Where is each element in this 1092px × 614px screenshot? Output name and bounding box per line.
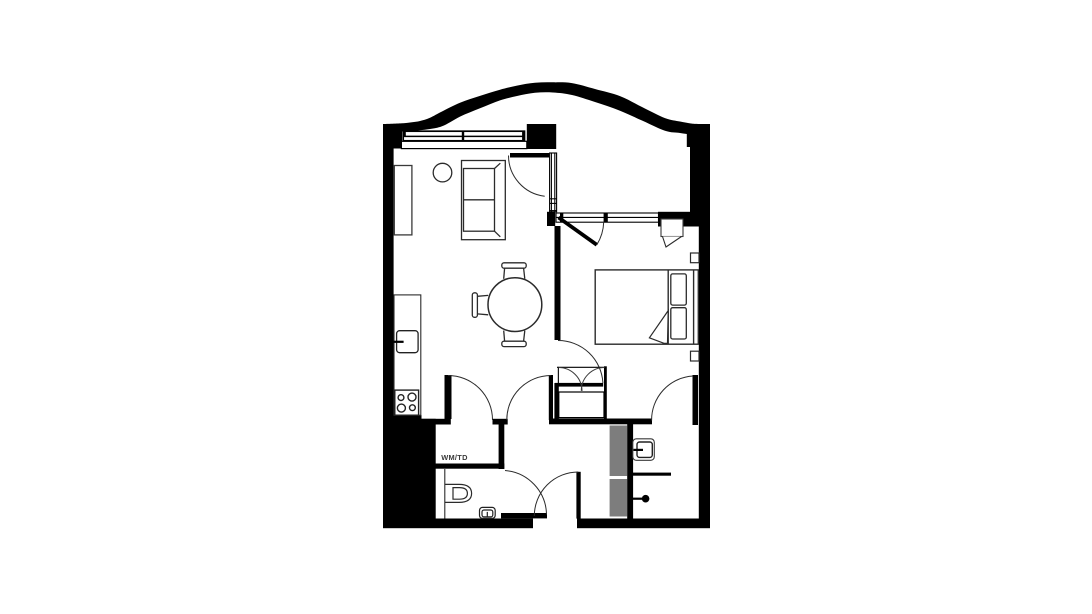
svg-text:WM/TD: WM/TD bbox=[441, 453, 468, 462]
